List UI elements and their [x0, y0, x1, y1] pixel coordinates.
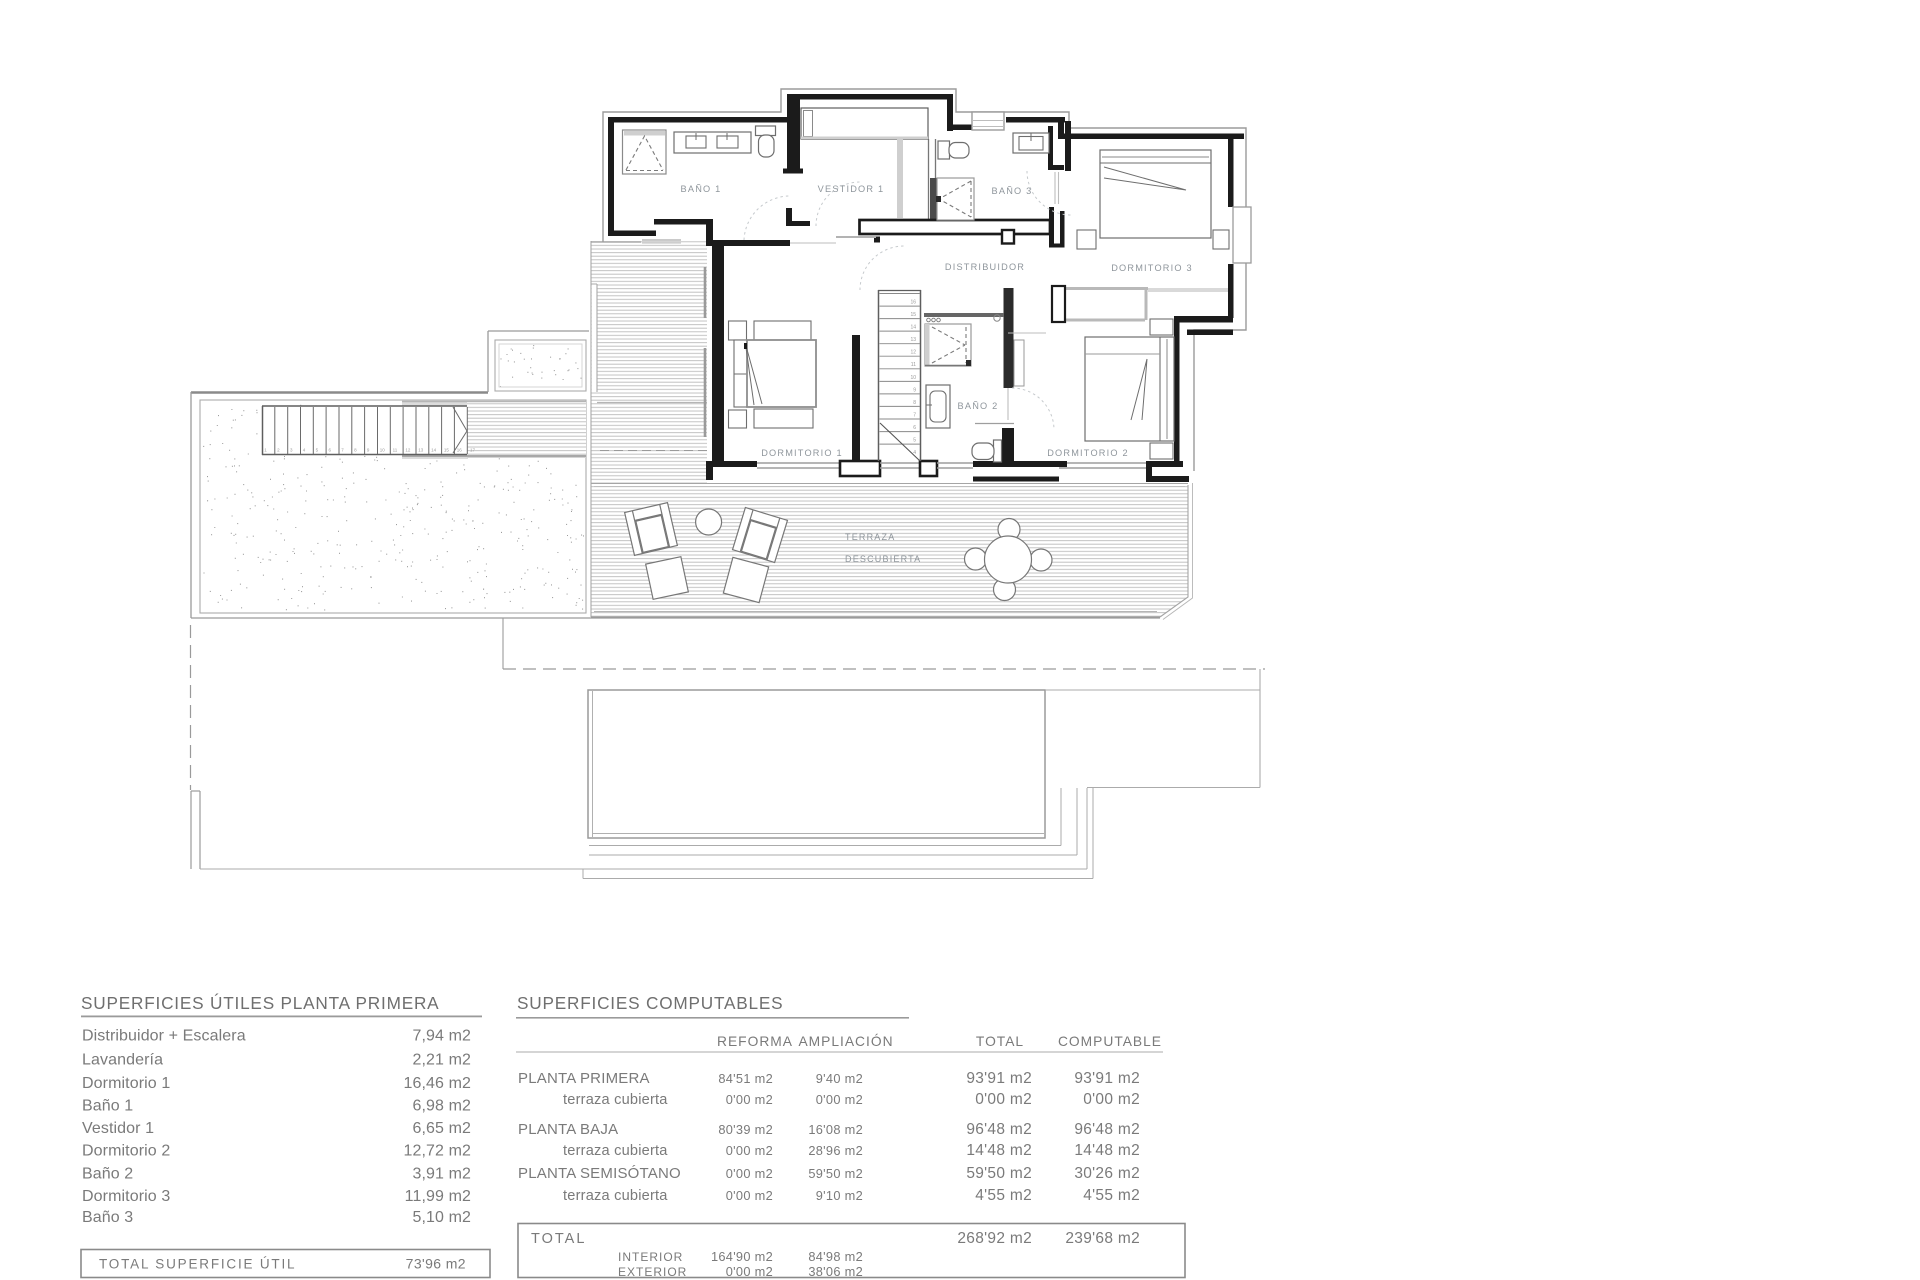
- svg-text:4'55 m2: 4'55 m2: [1083, 1187, 1140, 1204]
- svg-text:0'00 m2: 0'00 m2: [726, 1264, 773, 1279]
- svg-text:TERRAZA: TERRAZA: [845, 532, 895, 542]
- svg-text:12: 12: [910, 350, 916, 356]
- svg-text:terraza cubierta: terraza cubierta: [563, 1188, 668, 1204]
- svg-text:0'00 m2: 0'00 m2: [975, 1091, 1032, 1108]
- svg-text:0'00 m2: 0'00 m2: [816, 1092, 863, 1107]
- svg-text:5,10 m2: 5,10 m2: [412, 1209, 471, 1226]
- svg-text:0'00 m2: 0'00 m2: [1083, 1091, 1140, 1108]
- svg-text:Lavandería: Lavandería: [82, 1052, 163, 1069]
- svg-text:13: 13: [910, 337, 916, 343]
- svg-text:Baño 3: Baño 3: [82, 1209, 133, 1226]
- svg-text:0'00 m2: 0'00 m2: [726, 1166, 773, 1181]
- svg-text:INTERIOR: INTERIOR: [618, 1250, 683, 1264]
- svg-text:Baño 1: Baño 1: [82, 1098, 133, 1115]
- svg-text:16'08 m2: 16'08 m2: [808, 1122, 863, 1137]
- svg-text:84'98 m2: 84'98 m2: [808, 1249, 863, 1264]
- svg-text:38'06 m2: 38'06 m2: [808, 1264, 863, 1279]
- svg-text:7,94 m2: 7,94 m2: [412, 1028, 471, 1045]
- svg-text:14: 14: [431, 448, 437, 453]
- svg-text:84'51 m2: 84'51 m2: [718, 1071, 773, 1086]
- svg-text:TOTAL: TOTAL: [531, 1231, 586, 1247]
- svg-text:BAÑO 3: BAÑO 3: [992, 186, 1033, 196]
- svg-text:59'50 m2: 59'50 m2: [966, 1165, 1032, 1182]
- svg-text:11: 11: [393, 448, 398, 453]
- svg-text:Vestidor 1: Vestidor 1: [82, 1120, 154, 1137]
- svg-text:30'26 m2: 30'26 m2: [1074, 1165, 1140, 1182]
- svg-text:96'48 m2: 96'48 m2: [1074, 1121, 1140, 1138]
- svg-text:Dormitorio 3: Dormitorio 3: [82, 1188, 170, 1205]
- svg-text:DORMITORIO 3: DORMITORIO 3: [1111, 263, 1193, 273]
- svg-text:PLANTA SEMISÓTANO: PLANTA SEMISÓTANO: [518, 1165, 681, 1182]
- svg-text:6,65 m2: 6,65 m2: [412, 1120, 471, 1137]
- svg-text:Dormitorio 1: Dormitorio 1: [82, 1075, 170, 1092]
- svg-text:10: 10: [380, 448, 386, 453]
- svg-text:PLANTA PRIMERA: PLANTA PRIMERA: [518, 1070, 650, 1087]
- svg-text:EXTERIOR: EXTERIOR: [618, 1265, 687, 1279]
- svg-text:11,99 m2: 11,99 m2: [405, 1188, 471, 1205]
- svg-text:0'00 m2: 0'00 m2: [726, 1188, 773, 1203]
- svg-text:14: 14: [910, 325, 916, 331]
- svg-text:239'68 m2: 239'68 m2: [1065, 1230, 1140, 1247]
- svg-text:8: 8: [913, 400, 916, 406]
- svg-text:DESCUBIERTA: DESCUBIERTA: [845, 554, 921, 564]
- svg-text:14'48 m2: 14'48 m2: [966, 1142, 1032, 1159]
- svg-text:BAÑO 2: BAÑO 2: [958, 401, 999, 411]
- svg-text:Distribuidor + Escalera: Distribuidor + Escalera: [82, 1028, 246, 1045]
- svg-text:SUPERFICIES COMPUTABLES: SUPERFICIES COMPUTABLES: [517, 993, 783, 1013]
- svg-text:3,91 m2: 3,91 m2: [412, 1166, 471, 1183]
- svg-text:0'00 m2: 0'00 m2: [726, 1143, 773, 1158]
- svg-text:28'96 m2: 28'96 m2: [808, 1143, 863, 1158]
- svg-text:9: 9: [913, 387, 916, 393]
- svg-text:terraza cubierta: terraza cubierta: [563, 1092, 668, 1108]
- svg-text:TOTAL SUPERFICIE ÚTIL: TOTAL SUPERFICIE ÚTIL: [99, 1257, 296, 1272]
- svg-text:13: 13: [418, 448, 424, 453]
- svg-text:6,98 m2: 6,98 m2: [412, 1098, 471, 1115]
- svg-text:9'10 m2: 9'10 m2: [816, 1188, 863, 1203]
- svg-text:DORMITORIO 1: DORMITORIO 1: [761, 448, 843, 458]
- svg-text:COMPUTABLE: COMPUTABLE: [1058, 1034, 1162, 1049]
- svg-text:93'91 m2: 93'91 m2: [1074, 1070, 1140, 1087]
- svg-text:6: 6: [913, 425, 916, 431]
- svg-text:4'55 m2: 4'55 m2: [975, 1187, 1032, 1204]
- svg-text:PLANTA BAJA: PLANTA BAJA: [518, 1121, 618, 1138]
- svg-text:AMPLIACIÓN: AMPLIACIÓN: [798, 1033, 893, 1049]
- svg-text:16,46 m2: 16,46 m2: [403, 1075, 471, 1092]
- svg-text:10: 10: [910, 375, 916, 381]
- svg-text:terraza cubierta: terraza cubierta: [563, 1143, 668, 1159]
- svg-text:15: 15: [910, 312, 916, 318]
- svg-text:16: 16: [910, 300, 916, 306]
- svg-text:73'96 m2: 73'96 m2: [406, 1256, 466, 1272]
- svg-text:16: 16: [457, 448, 463, 453]
- svg-text:DORMITORIO 2: DORMITORIO 2: [1047, 448, 1129, 458]
- svg-text:7: 7: [913, 412, 916, 418]
- svg-text:REFORMA: REFORMA: [717, 1034, 793, 1049]
- svg-text:80'39 m2: 80'39 m2: [718, 1122, 773, 1137]
- svg-text:VESTIDOR 1: VESTIDOR 1: [818, 184, 885, 194]
- svg-text:DISTRIBUIDOR: DISTRIBUIDOR: [945, 262, 1025, 272]
- svg-text:17: 17: [470, 448, 476, 453]
- svg-text:SUPERFICIES ÚTILES PLANTA PRIM: SUPERFICIES ÚTILES PLANTA PRIMERA: [81, 993, 439, 1013]
- svg-text:2,21 m2: 2,21 m2: [412, 1052, 471, 1069]
- svg-text:11: 11: [911, 362, 916, 368]
- svg-text:BAÑO 1: BAÑO 1: [681, 184, 722, 194]
- svg-text:96'48 m2: 96'48 m2: [966, 1121, 1032, 1138]
- svg-text:9'40 m2: 9'40 m2: [816, 1071, 863, 1086]
- svg-text:164'90 m2: 164'90 m2: [711, 1249, 773, 1264]
- svg-text:12,72 m2: 12,72 m2: [403, 1143, 471, 1160]
- svg-text:14'48 m2: 14'48 m2: [1074, 1142, 1140, 1159]
- svg-text:59'50 m2: 59'50 m2: [808, 1166, 863, 1181]
- svg-text:93'91 m2: 93'91 m2: [966, 1070, 1032, 1087]
- svg-text:Dormitorio 2: Dormitorio 2: [82, 1143, 170, 1160]
- svg-text:TOTAL: TOTAL: [976, 1034, 1024, 1049]
- svg-text:Baño 2: Baño 2: [82, 1166, 133, 1183]
- svg-text:5: 5: [913, 438, 916, 444]
- svg-text:0'00 m2: 0'00 m2: [726, 1092, 773, 1107]
- svg-text:268'92 m2: 268'92 m2: [957, 1230, 1032, 1247]
- svg-text:12: 12: [405, 448, 411, 453]
- svg-text:15: 15: [444, 448, 450, 453]
